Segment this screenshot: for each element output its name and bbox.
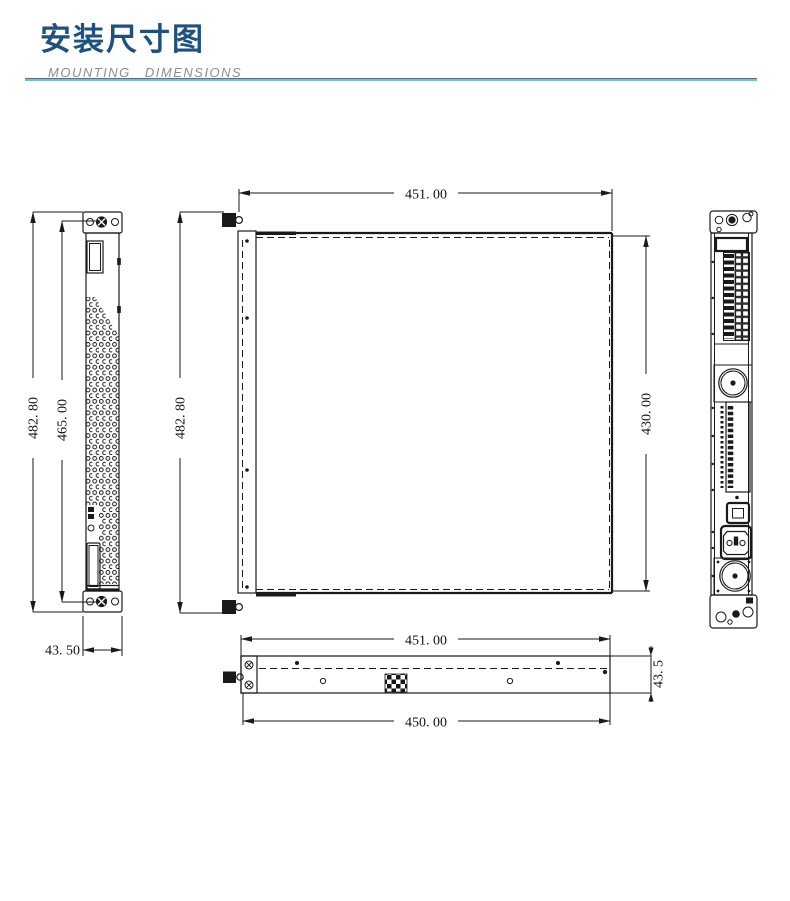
- screw-icon: [732, 610, 740, 618]
- dim-label: 482. 80: [27, 397, 42, 439]
- mount-screw-block-left: [223, 672, 236, 684]
- screw-hole-icon: [112, 598, 119, 605]
- screw-icon: [245, 681, 253, 689]
- open-hole-icon: [507, 678, 512, 683]
- dim-top-body-depth: 430. 00: [612, 236, 655, 591]
- screw-hole-icon: [603, 670, 607, 674]
- front-view: 482. 80 465. 00 43. 50: [26, 212, 123, 659]
- side-mount-ear-bottom: [710, 595, 757, 628]
- dim-label: 430. 00: [640, 393, 655, 435]
- dim-label: 451. 00: [405, 188, 447, 203]
- dim-label: 43. 5: [652, 660, 667, 688]
- dim-bottom-width-inner: 450. 00: [243, 693, 610, 731]
- display-window: [87, 241, 103, 273]
- screw-icon: [96, 216, 107, 227]
- screw-hole-icon: [245, 468, 249, 472]
- bottom-view: 451. 00 450. 00 43. 5: [223, 632, 667, 731]
- front-panel-edge: [238, 231, 296, 597]
- terminal-block: [715, 253, 750, 345]
- screw-hole-icon: [245, 585, 249, 589]
- screw-hole-icon: [715, 216, 723, 224]
- status-led-icons: [88, 507, 94, 531]
- dim-front-total-height: 482. 80: [26, 212, 84, 612]
- vent-dot-pattern: [86, 297, 119, 584]
- edge-tab: [117, 306, 121, 313]
- dim-label: 451. 00: [405, 634, 447, 649]
- screw-hole-icon: [245, 316, 249, 320]
- edge-tab: [117, 258, 121, 265]
- screw-hole-icon: [716, 612, 726, 622]
- front-mount-ear-top: [83, 212, 122, 233]
- power-inlet-icon: [721, 526, 751, 559]
- front-slot: [87, 543, 100, 589]
- vent-grid-pattern: [385, 674, 407, 692]
- fan-icon: [714, 558, 753, 595]
- screw-hole-icon: [743, 607, 753, 617]
- mounting-dimensions-page: 安装尺寸图 MOUNTING DIMENSIONS: [0, 0, 790, 901]
- screw-hole-icon: [295, 661, 299, 665]
- dim-label: 450. 00: [405, 716, 447, 731]
- dim-label: 482. 80: [174, 397, 189, 439]
- power-switch-icon: [727, 503, 749, 523]
- mount-screw-block-top: [222, 213, 242, 227]
- dim-top-width: 451. 00: [239, 186, 612, 231]
- mount-screw-block-bottom: [222, 600, 242, 614]
- label-plate: [722, 402, 750, 492]
- side-view: [710, 211, 757, 628]
- indicator-dot: [735, 496, 739, 500]
- dim-front-width: 43. 50: [45, 616, 122, 659]
- dim-top-total-height: 482. 80: [173, 212, 225, 613]
- fan-icon: [714, 365, 752, 402]
- screw-hole-icon: [87, 219, 94, 226]
- mounting-drawing: 482. 80 465. 00 43. 50: [0, 0, 790, 901]
- mount-bracket: [223, 656, 257, 693]
- screw-hole-icon: [112, 219, 119, 226]
- screw-hole-icon: [743, 213, 751, 221]
- screw-hole-icon: [245, 239, 249, 243]
- dim-bottom-height: 43. 5: [610, 646, 667, 702]
- open-hole-icon: [320, 678, 325, 683]
- dim-bottom-width-outer: 451. 00: [241, 632, 610, 656]
- screw-hole-icon: [556, 661, 560, 665]
- top-view: 451. 00 482. 80 430. 00: [173, 186, 655, 614]
- rear-io-slot: [716, 238, 747, 251]
- screw-icon: [245, 661, 253, 669]
- dim-label: 43. 50: [45, 644, 80, 659]
- dim-label: 465. 00: [56, 399, 71, 441]
- chassis-outline: [256, 233, 612, 593]
- side-wall-holes: [712, 261, 714, 577]
- side-mount-ear-top: [710, 211, 757, 233]
